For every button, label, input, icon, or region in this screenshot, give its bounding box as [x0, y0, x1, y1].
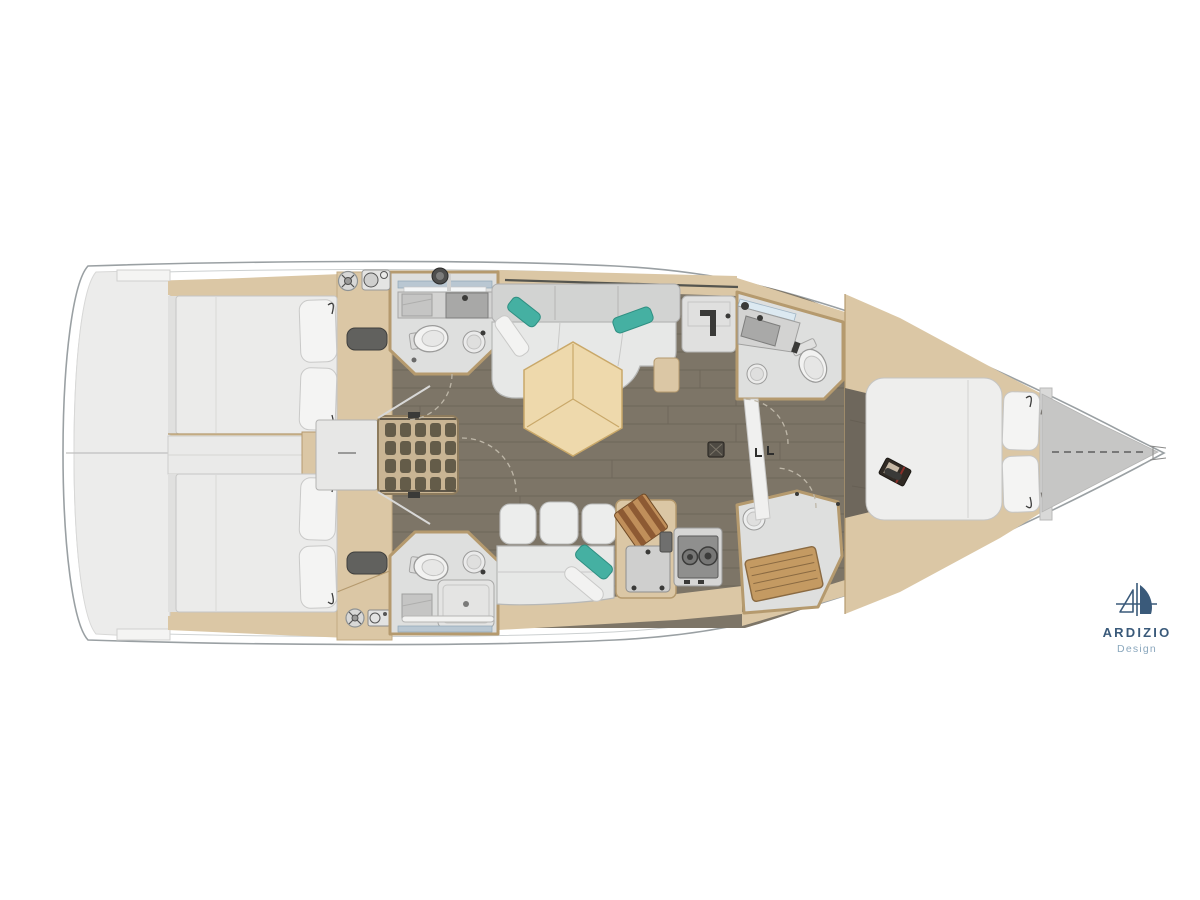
deck-winch: [339, 272, 358, 291]
mast-step: [708, 442, 724, 457]
aft-cabin-port: [168, 272, 392, 438]
stern-locker-hatch: [117, 629, 170, 640]
logo-subtitle: Design: [1117, 643, 1157, 655]
wardrobe: [337, 272, 392, 438]
deck-winch: [346, 609, 390, 627]
head-aft-starboard: [390, 532, 498, 634]
deck-block: [741, 302, 749, 310]
brand-logo: ARDIZIO Design: [1103, 583, 1172, 655]
logo-title: ARDIZIO: [1103, 625, 1172, 640]
shower-drain: [412, 358, 417, 363]
sofa-end-tray: [654, 358, 679, 392]
faucet: [462, 295, 468, 301]
stern-platform: [66, 270, 170, 640]
bow-foredeck: [1042, 394, 1166, 512]
hull-window: [347, 552, 387, 574]
island-bed: [866, 378, 1002, 520]
hull-window: [347, 328, 387, 350]
aft-cabin-divider: [168, 432, 320, 478]
forward-cabin: [845, 294, 1052, 614]
head-aft-port: [390, 272, 498, 374]
engine-hatch: [316, 420, 378, 490]
starboard-settee: [497, 502, 616, 605]
yacht-floorplan-page: ARDIZIO Design: [0, 0, 1200, 900]
stove: [674, 528, 722, 586]
round-sink: [463, 331, 486, 354]
stern-locker-hatch: [117, 270, 170, 281]
vanity-cabinet: [402, 594, 432, 618]
grab-rail: [402, 616, 494, 622]
round-sink: [747, 364, 767, 384]
mirror: [398, 626, 492, 632]
salon-sideboard: [682, 296, 736, 352]
faucet: [757, 315, 763, 321]
yacht-floorplan: ARDIZIO Design: [0, 0, 1200, 900]
galley-sink: [660, 532, 672, 552]
sailboat-logo-icon: [1116, 583, 1157, 616]
